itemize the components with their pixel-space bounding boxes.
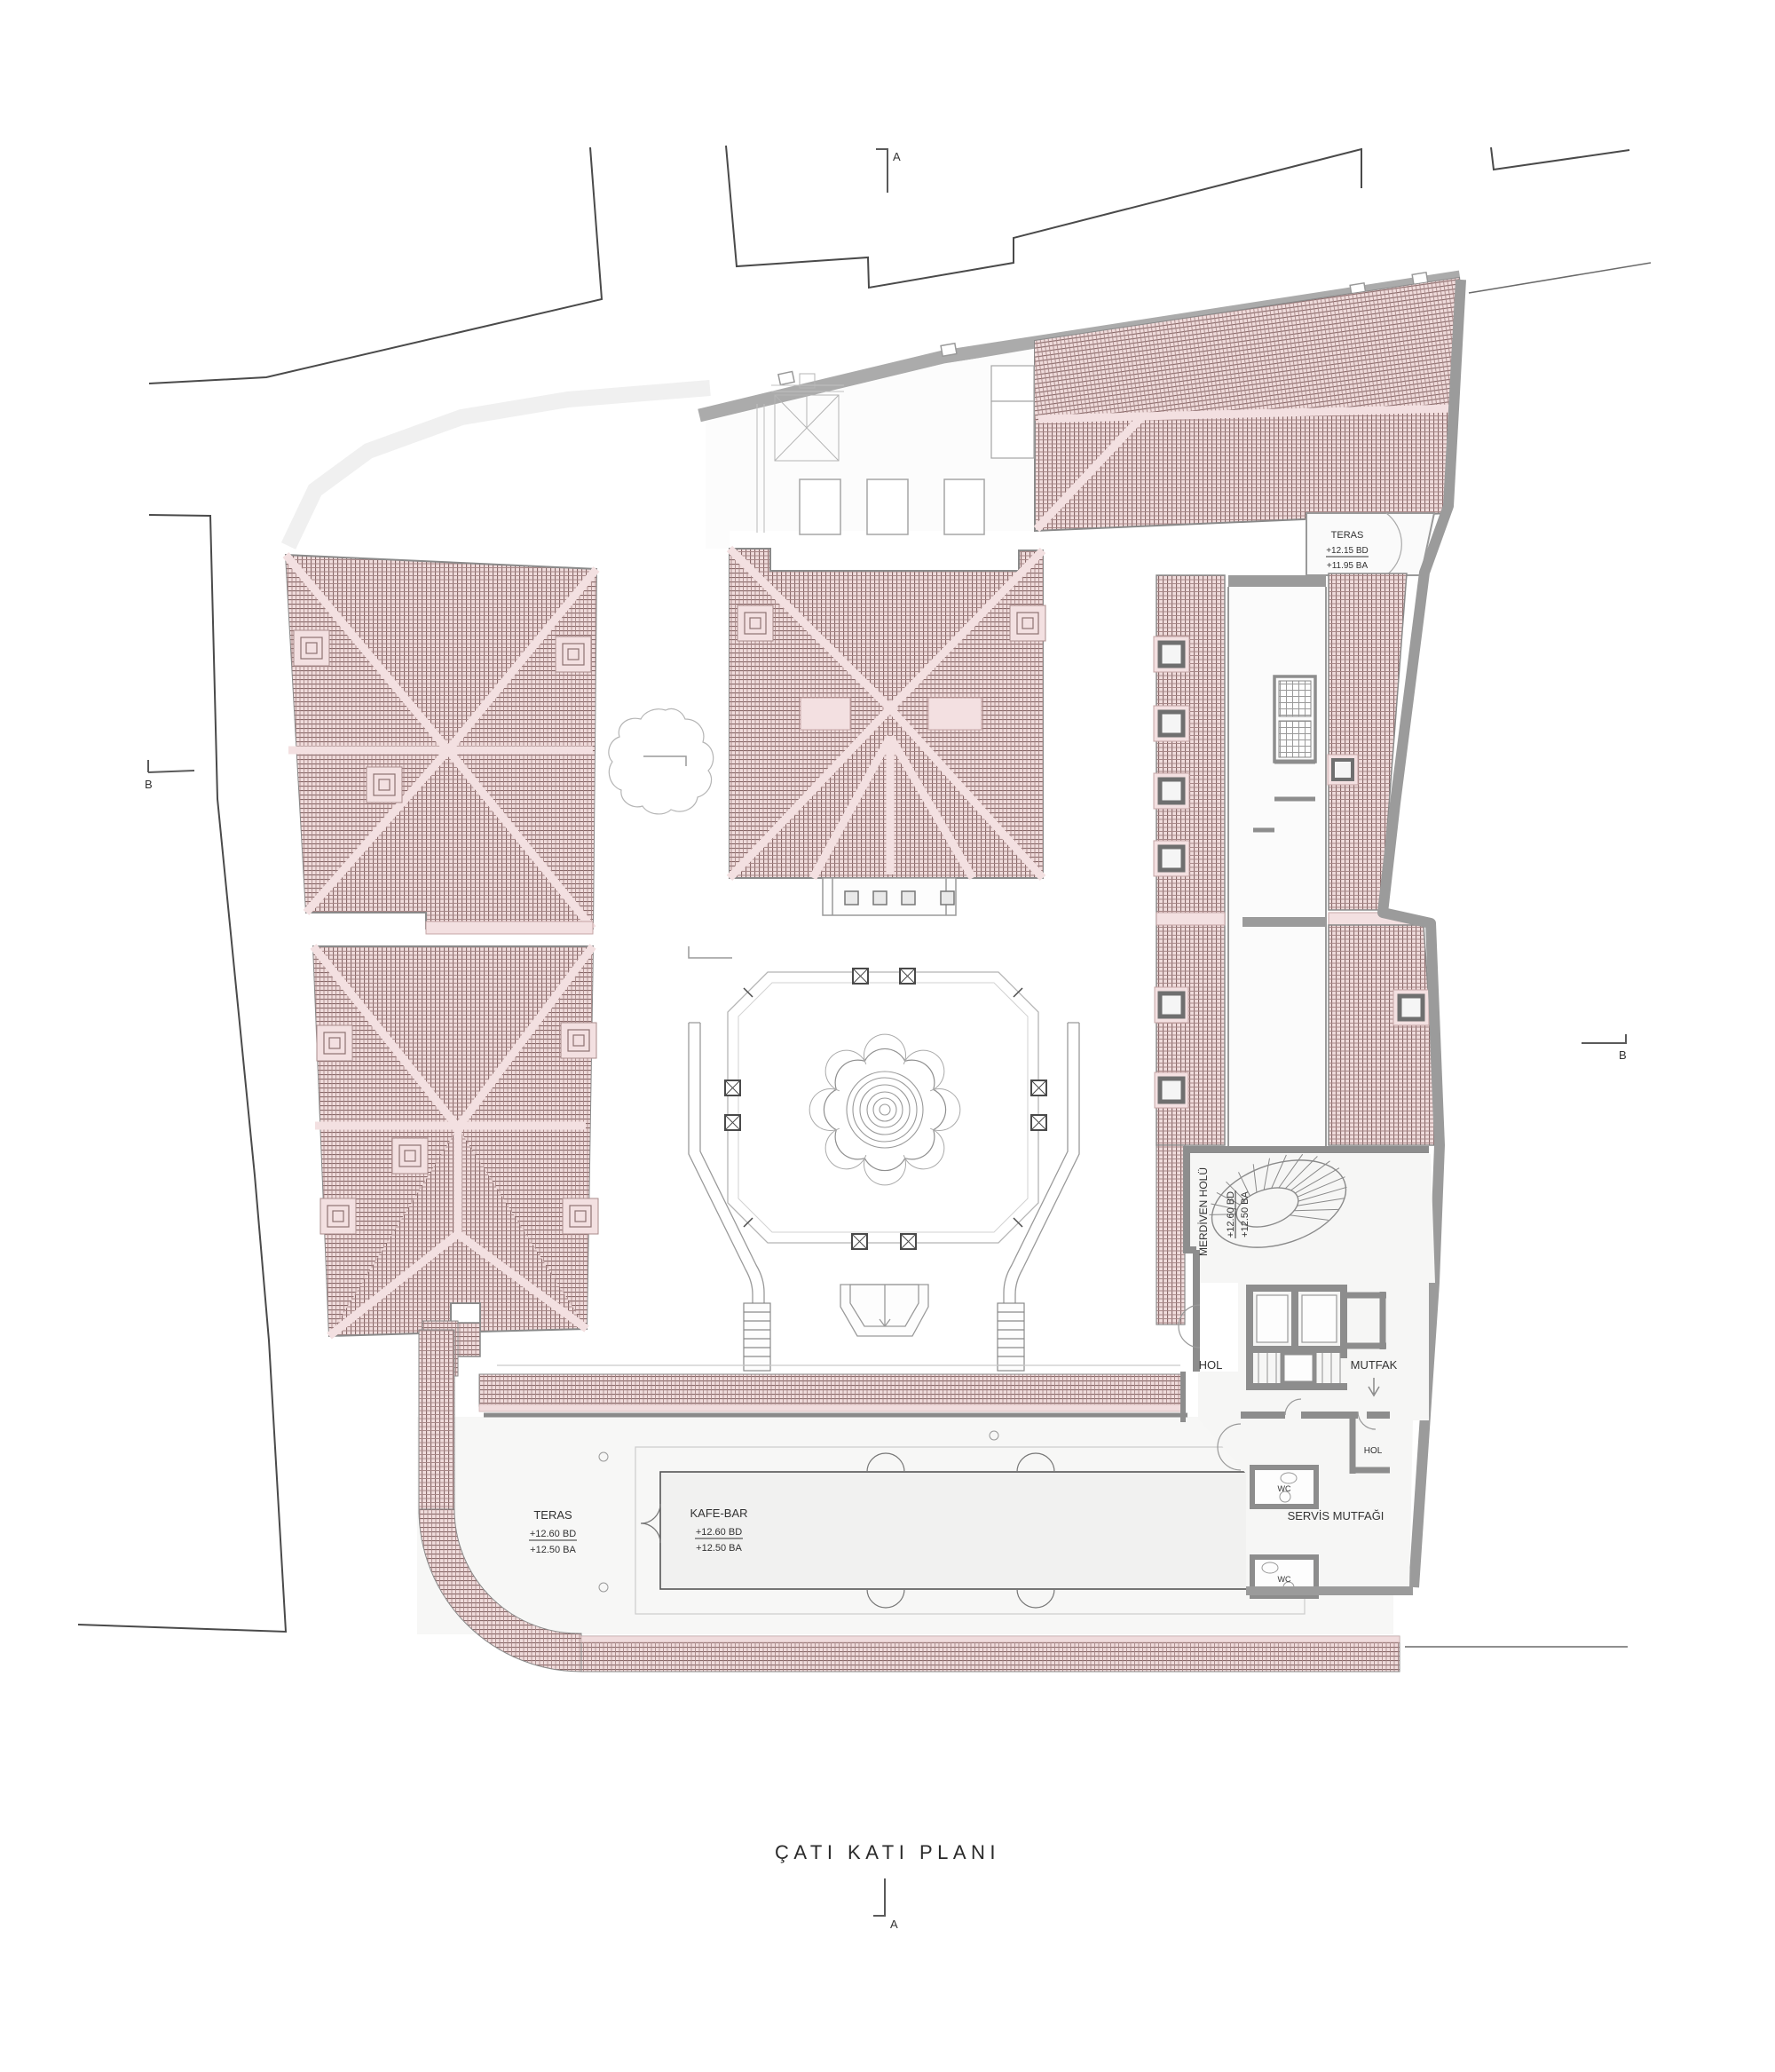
svg-text:+12.60 BD: +12.60 BD: [530, 1529, 576, 1539]
svg-text:+12.50 BA: +12.50 BA: [530, 1545, 576, 1555]
svg-text:MERDİVEN HOLÜ: MERDİVEN HOLÜ: [1197, 1167, 1210, 1256]
svg-text:B: B: [145, 778, 153, 791]
svg-text:WC: WC: [1278, 1575, 1291, 1584]
svg-text:+12.60 BD: +12.60 BD: [696, 1527, 742, 1538]
svg-text:SERVİS MUTFAĞI: SERVİS MUTFAĞI: [1288, 1509, 1384, 1522]
svg-text:HOL: HOL: [1199, 1358, 1223, 1372]
svg-text:ÇATI KATI PLANI: ÇATI KATI PLANI: [775, 1841, 1000, 1863]
svg-text:+11.95 BA: +11.95 BA: [1327, 561, 1369, 571]
svg-text:TERAS: TERAS: [1331, 530, 1364, 541]
svg-text:+12.15 BD: +12.15 BD: [1326, 546, 1369, 556]
svg-text:WC: WC: [1278, 1484, 1291, 1493]
svg-text:KAFE-BAR: KAFE-BAR: [690, 1507, 747, 1520]
svg-text:HOL: HOL: [1364, 1446, 1383, 1456]
svg-text:+12.50 BA: +12.50 BA: [1240, 1191, 1250, 1238]
svg-text:A: A: [893, 150, 901, 163]
svg-text:MUTFAK: MUTFAK: [1351, 1358, 1398, 1372]
svg-text:A: A: [890, 1918, 898, 1931]
svg-text:B: B: [1619, 1048, 1627, 1062]
svg-text:TERAS: TERAS: [533, 1508, 572, 1522]
svg-text:+12.50 BA: +12.50 BA: [696, 1543, 742, 1554]
svg-text:+12.60 BD: +12.60 BD: [1226, 1191, 1236, 1238]
